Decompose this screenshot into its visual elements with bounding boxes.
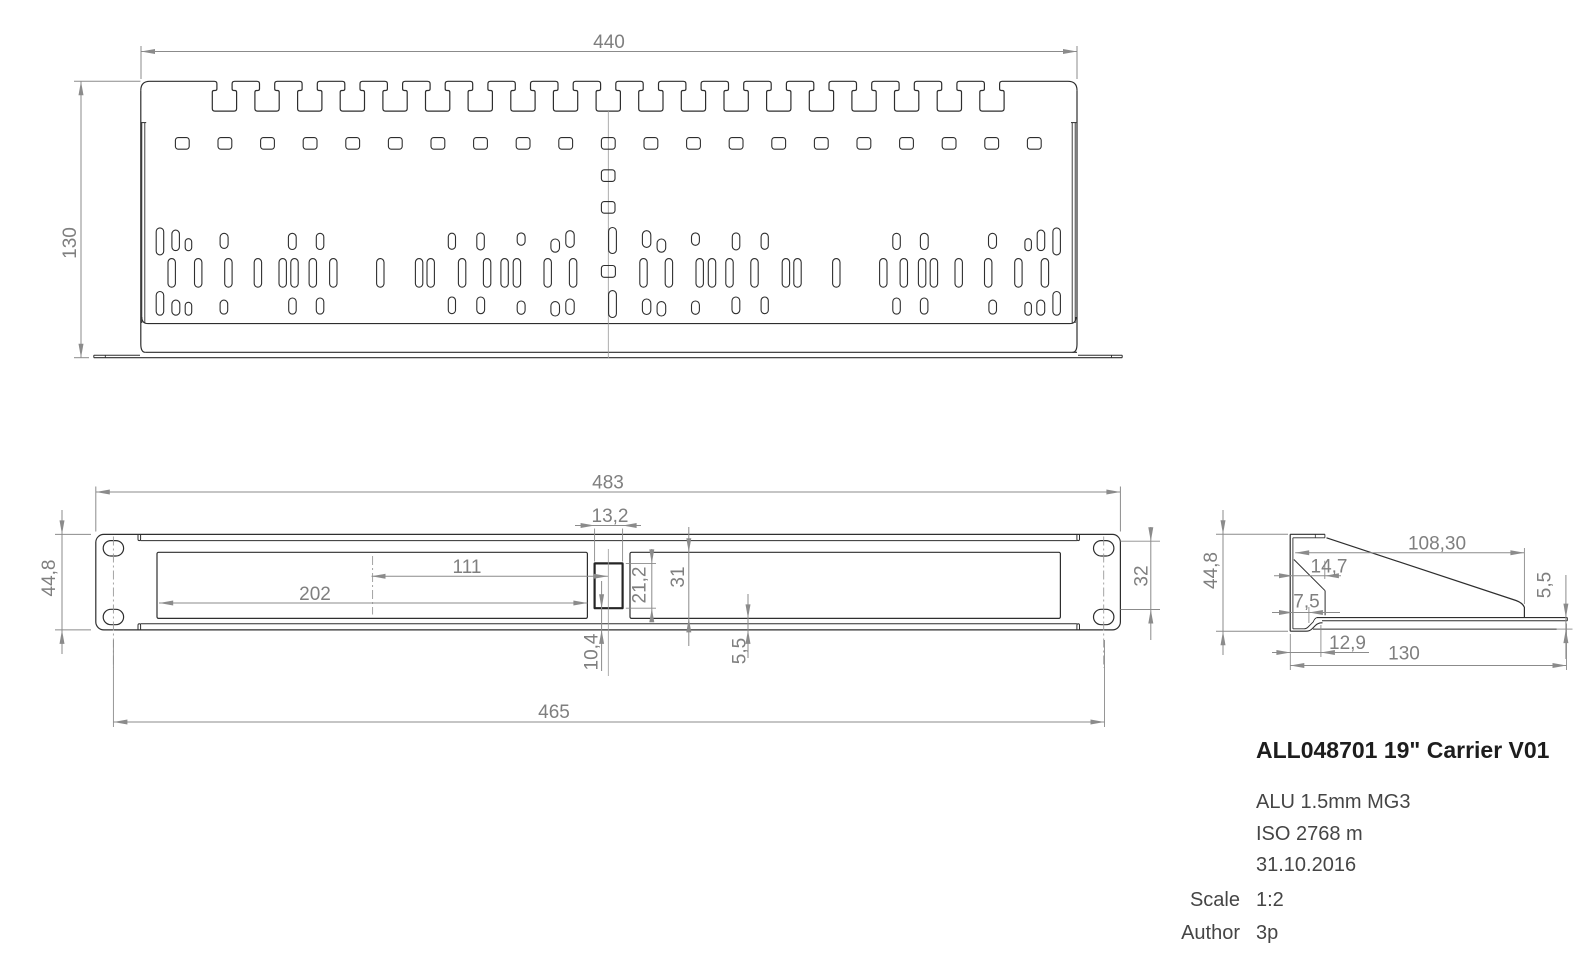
svg-text:44,8: 44,8 <box>1201 552 1222 589</box>
svg-text:202: 202 <box>299 584 331 605</box>
svg-text:7,5: 7,5 <box>1293 592 1319 613</box>
svg-text:32: 32 <box>1132 565 1153 586</box>
svg-text:Scale: Scale <box>1190 889 1240 911</box>
svg-text:ALU 1.5mm MG3: ALU 1.5mm MG3 <box>1256 791 1410 813</box>
svg-text:130: 130 <box>1388 644 1420 665</box>
svg-text:108,30: 108,30 <box>1408 534 1466 555</box>
svg-text:13,2: 13,2 <box>592 506 629 527</box>
svg-text:Author: Author <box>1181 922 1240 944</box>
svg-text:44,8: 44,8 <box>39 560 60 597</box>
svg-text:ISO 2768 m: ISO 2768 m <box>1256 823 1363 845</box>
svg-text:12,9: 12,9 <box>1329 633 1366 654</box>
svg-text:ALL048701 19" Carrier V01: ALL048701 19" Carrier V01 <box>1256 737 1550 763</box>
svg-text:31.10.2016: 31.10.2016 <box>1256 854 1356 876</box>
svg-text:3p: 3p <box>1256 922 1278 944</box>
svg-text:21,2: 21,2 <box>630 567 651 604</box>
svg-text:130: 130 <box>60 227 81 259</box>
svg-text:5,5: 5,5 <box>1535 572 1556 598</box>
svg-text:1:2: 1:2 <box>1256 889 1284 911</box>
svg-text:483: 483 <box>592 473 624 494</box>
svg-text:440: 440 <box>593 32 625 53</box>
svg-text:465: 465 <box>538 702 570 723</box>
svg-text:10,4: 10,4 <box>582 633 603 670</box>
svg-text:14,7: 14,7 <box>1311 557 1348 578</box>
svg-text:111: 111 <box>453 557 482 578</box>
svg-text:5,5: 5,5 <box>730 638 751 664</box>
svg-text:31: 31 <box>668 566 689 587</box>
